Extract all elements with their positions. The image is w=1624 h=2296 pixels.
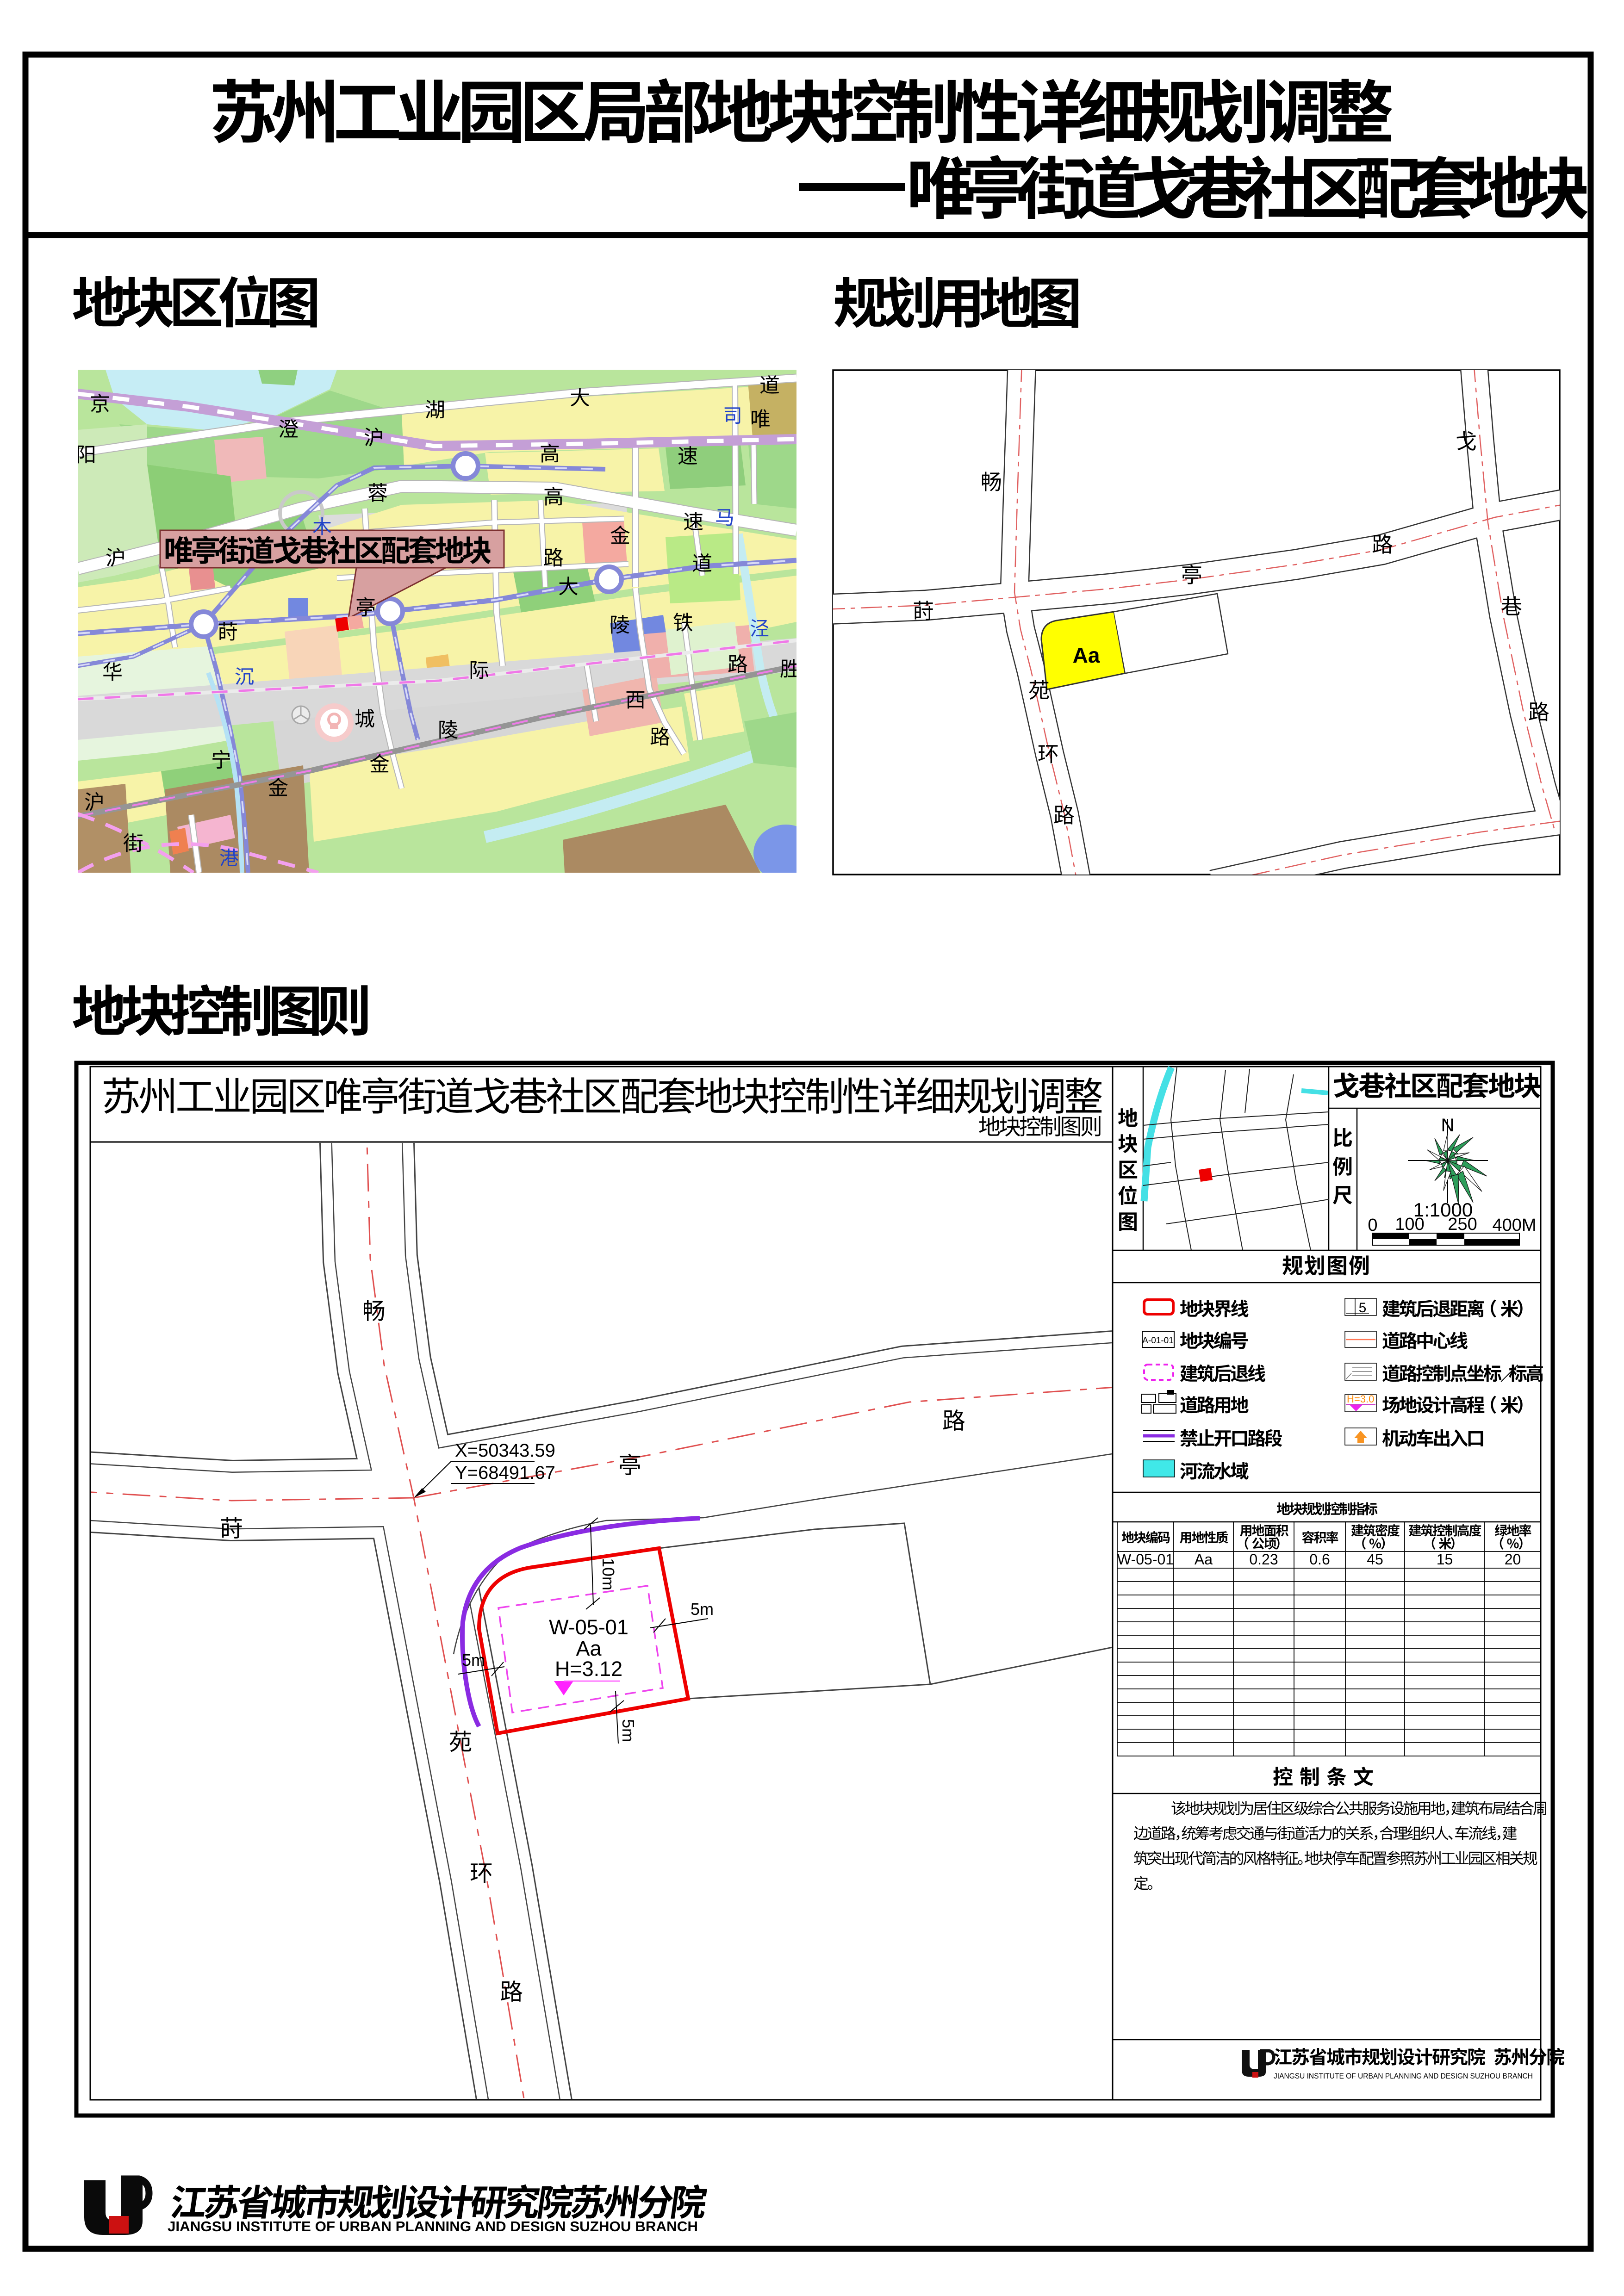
svg-text:Y=68491.67: Y=68491.67: [455, 1463, 555, 1483]
svg-text:5m: 5m: [691, 1600, 714, 1619]
svg-text:0.6: 0.6: [1309, 1551, 1330, 1568]
svg-text:Aa: Aa: [1195, 1551, 1213, 1568]
svg-text:H=3.0: H=3.0: [1347, 1393, 1374, 1405]
svg-text:15: 15: [1437, 1551, 1453, 1568]
svg-text:N: N: [1441, 1115, 1455, 1136]
svg-text:100: 100: [1395, 1215, 1424, 1234]
svg-text:X=50343.59: X=50343.59: [455, 1440, 555, 1461]
svg-text:10m: 10m: [599, 1558, 618, 1590]
svg-text:45: 45: [1367, 1551, 1383, 1568]
svg-text:5m: 5m: [462, 1651, 485, 1669]
svg-text:W-05-01: W-05-01: [549, 1615, 628, 1639]
svg-text:Aa: Aa: [1073, 643, 1100, 667]
svg-text:JIANGSU INSTITUTE OF URBAN PLA: JIANGSU INSTITUTE OF URBAN PLANNING AND …: [1274, 2072, 1533, 2080]
svg-text:400M: 400M: [1492, 1216, 1536, 1235]
svg-text:250: 250: [1448, 1215, 1477, 1234]
svg-text:20: 20: [1505, 1551, 1521, 1568]
svg-text:5m: 5m: [619, 1719, 638, 1742]
svg-text:0.23: 0.23: [1249, 1551, 1278, 1568]
svg-text:JIANGSU INSTITUTE OF URBAN PLA: JIANGSU INSTITUTE OF URBAN PLANNING AND …: [168, 2218, 698, 2234]
svg-text:H=3.12: H=3.12: [555, 1657, 622, 1681]
svg-text:0: 0: [1368, 1216, 1377, 1235]
svg-text:A-01-01: A-01-01: [1142, 1336, 1174, 1346]
svg-text:W-05-01: W-05-01: [1117, 1551, 1174, 1568]
